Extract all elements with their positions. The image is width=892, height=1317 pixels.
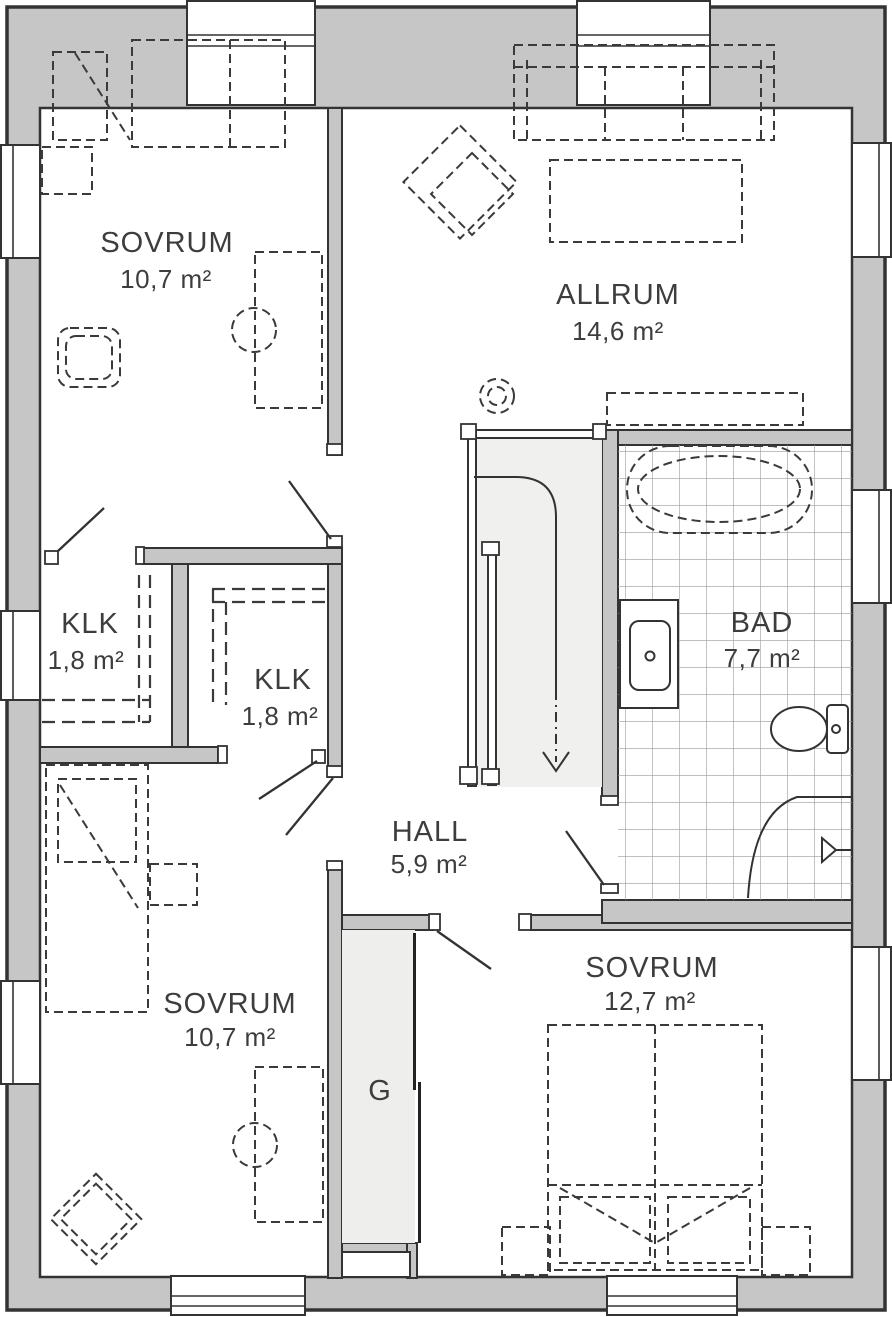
wall-garderob-top: [342, 915, 433, 930]
room-area-hall: 5,9 m²: [391, 849, 468, 879]
wall-garderob-bottom: [342, 1243, 417, 1252]
room-area-sovrum-1: 10,7 m²: [120, 264, 212, 294]
wall-bad-top: [602, 430, 852, 445]
room-label-sovrum-3: SOVRUM: [585, 952, 718, 984]
room-area-allrum: 14,6 m²: [572, 316, 664, 346]
wall-klk2-hall: [328, 548, 342, 777]
wall-sovrum1-allrum: [328, 108, 342, 455]
floor-plan-drawing: SOVRUM 10,7 m² ALLRUM 14,6 m² KLK 1,8 m²…: [0, 0, 892, 1317]
window-top-2: [577, 1, 710, 105]
window-right-1: [852, 143, 891, 257]
room-label-bad: BAD: [731, 607, 794, 639]
room-label-hall: HALL: [392, 816, 469, 848]
stair-railing-inner: [488, 549, 496, 785]
wall-bad-left: [602, 430, 618, 797]
wall-niche: [342, 1252, 410, 1277]
wall-klk-top: [143, 548, 342, 564]
wall-bad-bottom: [602, 900, 852, 923]
window-bottom-1: [171, 1276, 305, 1315]
window-right-3: [852, 947, 891, 1080]
stair-railing-top: [468, 430, 600, 438]
window-left-1: [1, 145, 40, 258]
sink-vanity-icon: [620, 600, 678, 708]
wall-sovrum2-top: [40, 747, 218, 763]
window-left-3: [1, 981, 40, 1084]
room-area-bad: 7,7 m²: [724, 643, 801, 673]
window-right-2: [852, 490, 891, 603]
room-label-klk-2: KLK: [254, 664, 312, 696]
window-bottom-2: [607, 1276, 737, 1315]
window-top-1: [187, 1, 315, 105]
wall-sovrum2-right: [328, 862, 342, 1278]
room-area-klk-2: 1,8 m²: [242, 701, 319, 731]
floor-plan: SOVRUM 10,7 m² ALLRUM 14,6 m² KLK 1,8 m²…: [0, 0, 892, 1317]
room-label-allrum: ALLRUM: [556, 279, 680, 311]
stairwell: [460, 424, 606, 787]
room-area-sovrum-3: 12,7 m²: [604, 986, 696, 1016]
room-label-klk-1: KLK: [61, 608, 119, 640]
toilet-icon: [771, 705, 848, 753]
wall-klk-divider: [172, 564, 188, 747]
window-left-2: [1, 611, 40, 700]
stair-railing-left: [468, 430, 476, 786]
room-label-sovrum-1: SOVRUM: [100, 227, 233, 259]
room-label-sovrum-2: SOVRUM: [163, 988, 296, 1020]
room-area-klk-1: 1,8 m²: [48, 645, 125, 675]
room-label-garderob: G: [368, 1075, 392, 1107]
room-area-sovrum-2: 10,7 m²: [184, 1022, 276, 1052]
